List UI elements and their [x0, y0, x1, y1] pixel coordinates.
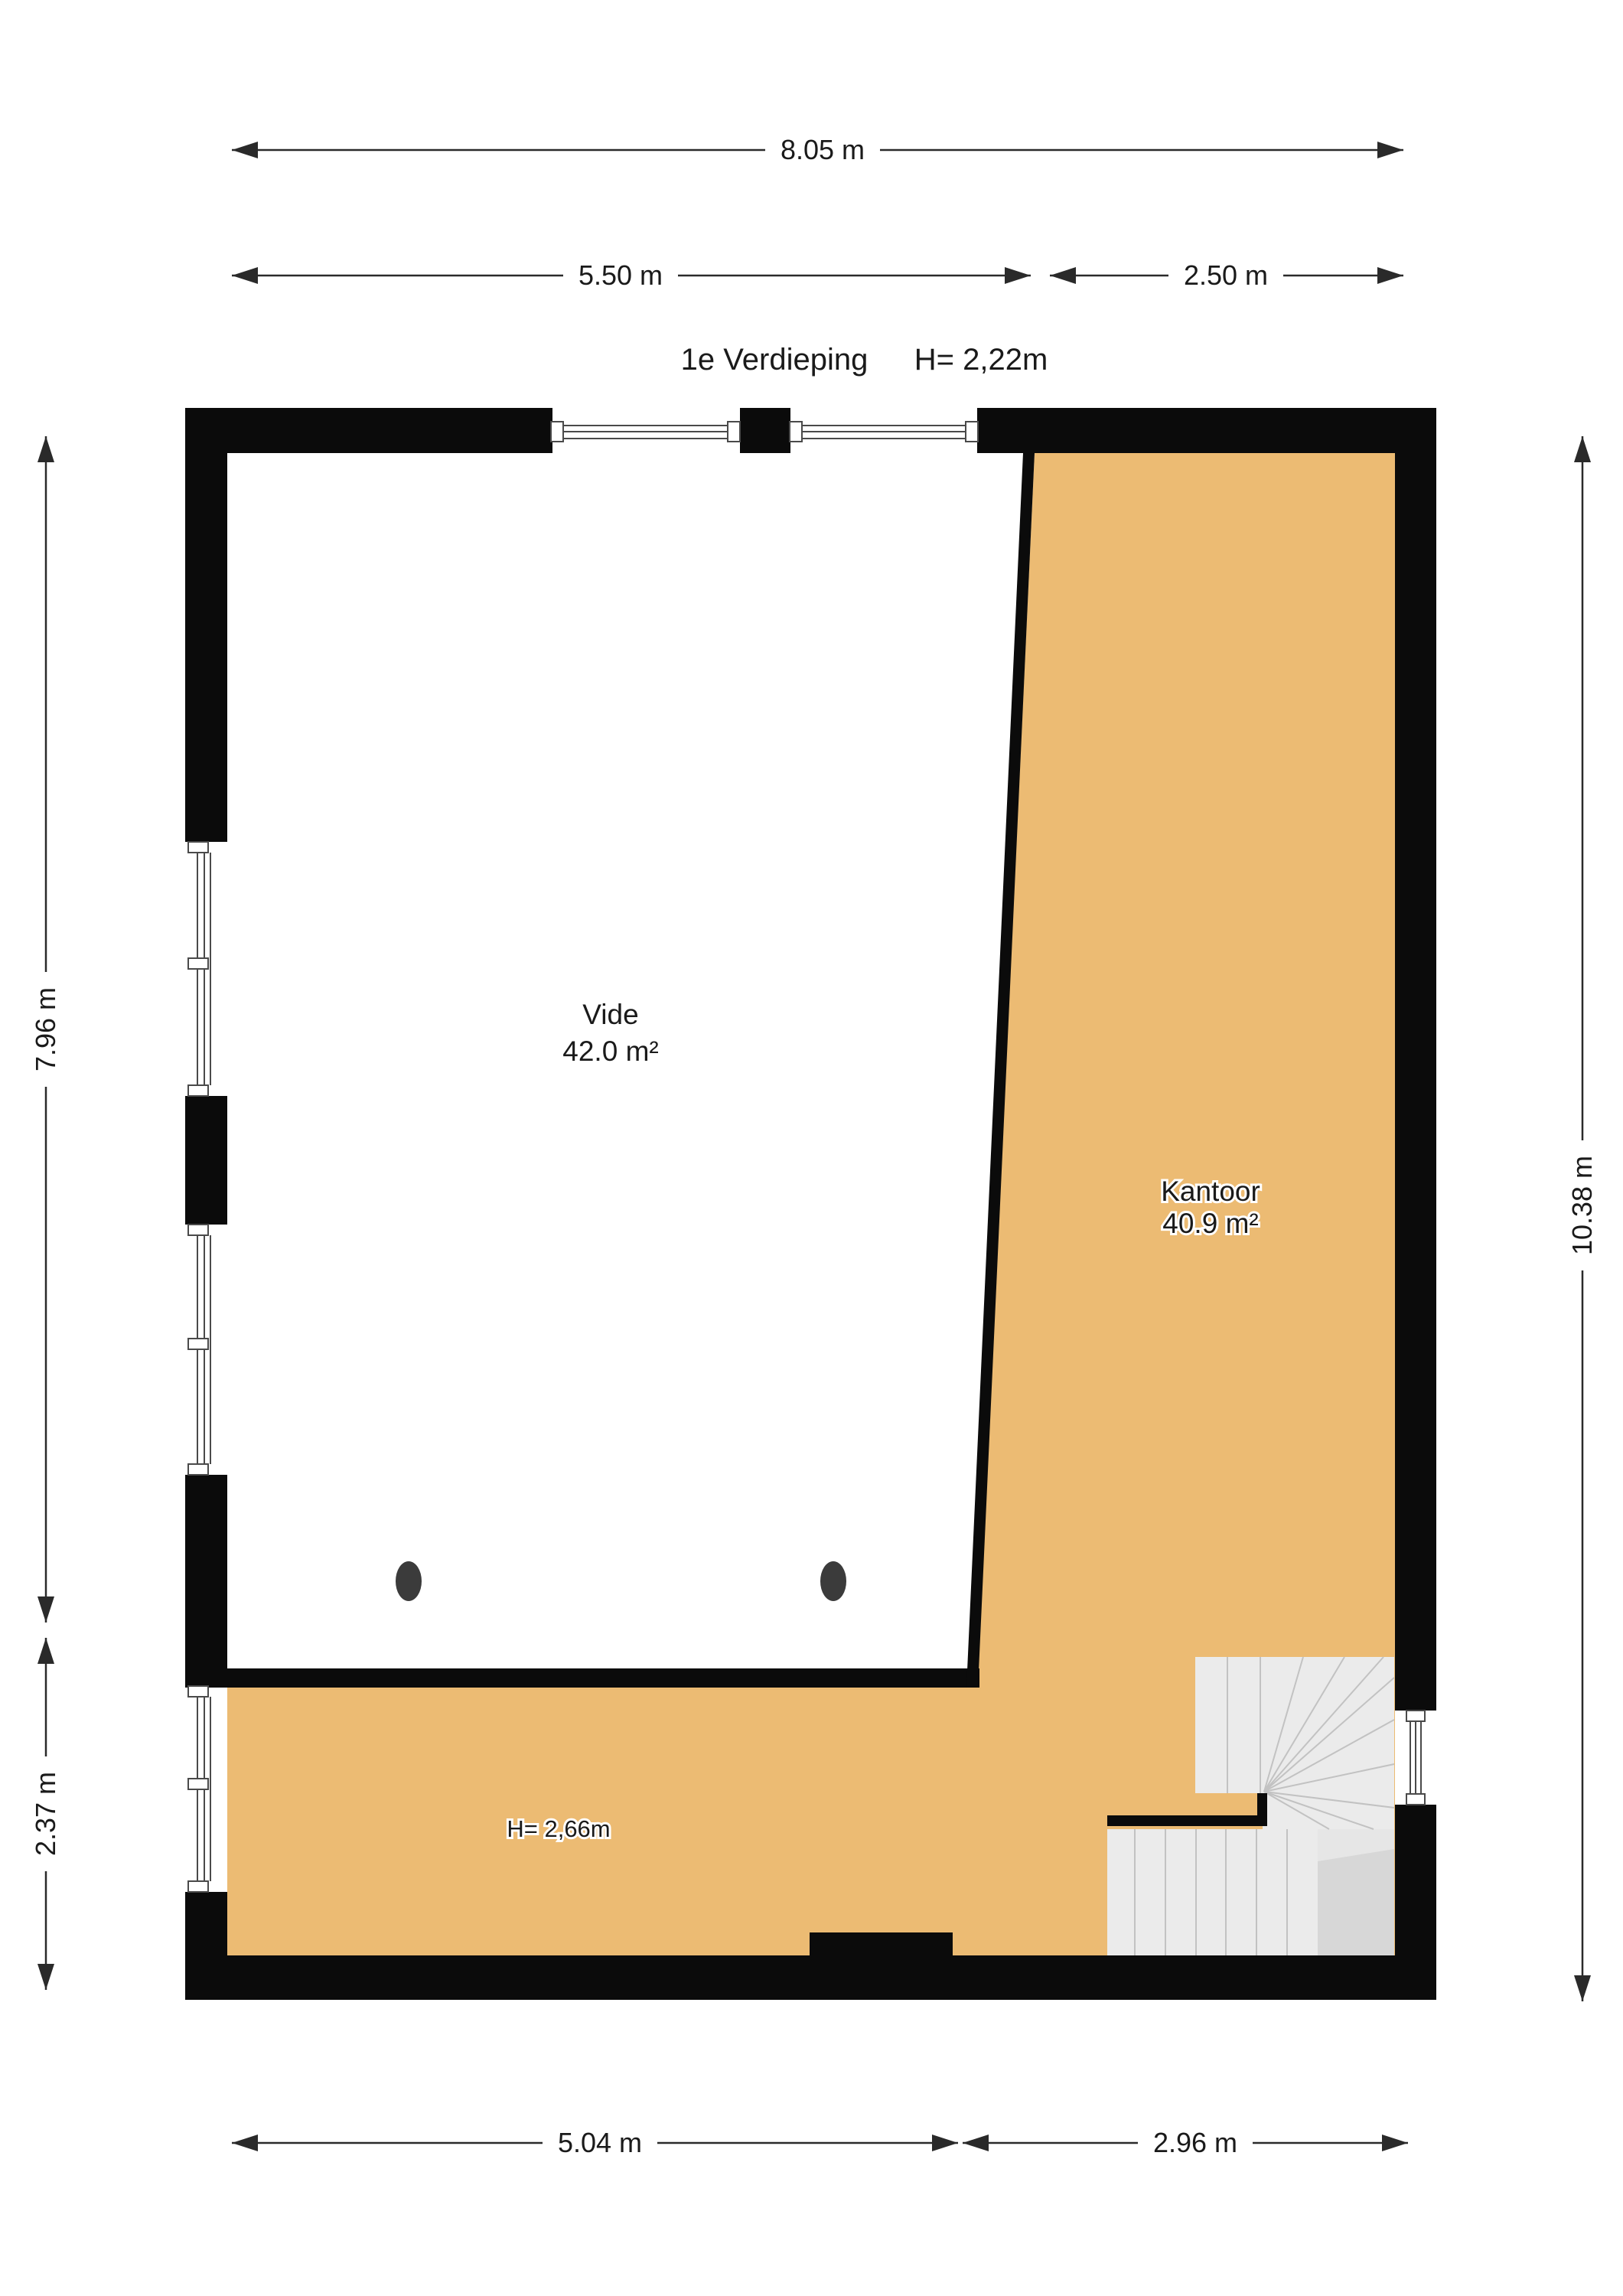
window-cap	[188, 1686, 208, 1697]
column-dot	[396, 1561, 422, 1601]
left-wall-upper	[185, 408, 227, 842]
vide-room-name: Vide	[582, 999, 638, 1030]
arrow-right-icon	[1377, 142, 1403, 158]
right-window	[1406, 1711, 1425, 1805]
kantoor-room-area: 40.9 m²	[1162, 1208, 1258, 1239]
ceiling-height-title: H= 2,22m	[914, 343, 1048, 377]
plan-title: 1e Verdieping H= 2,22m	[681, 343, 1048, 377]
right-wall-upper	[1395, 408, 1436, 1711]
arrow-down-icon	[37, 1964, 54, 1990]
left-window-3	[188, 1686, 210, 1892]
dim-bottom-left-label: 5.04 m	[558, 2127, 642, 2158]
arrow-up-icon	[37, 436, 54, 462]
arrow-right-icon	[1377, 267, 1403, 284]
dimension-top-total: 8.05 m	[232, 134, 1403, 165]
arrow-left-icon	[1050, 267, 1076, 284]
strip-height-label: H= 2,66m	[507, 1815, 610, 1842]
window-cap	[188, 1339, 208, 1349]
window-cap	[790, 422, 802, 442]
dimension-top-right: 2.50 m	[1050, 259, 1403, 291]
dim-top-right-label: 2.50 m	[1184, 259, 1268, 291]
stairs-lower-flight	[1107, 1829, 1318, 1955]
left-wall-block-2	[185, 1475, 227, 1688]
arrow-right-icon	[1005, 267, 1031, 284]
window-cap	[188, 842, 208, 853]
columns	[396, 1561, 846, 1601]
dim-right-label: 10.38 m	[1566, 1156, 1598, 1255]
top-wall-right	[977, 408, 1436, 453]
kantoor-room-name: Kantoor	[1161, 1176, 1260, 1207]
window-cap	[188, 958, 208, 969]
dimension-bottom-left: 5.04 m	[232, 2127, 958, 2158]
window-cap	[188, 1881, 208, 1892]
arrow-left-icon	[232, 267, 258, 284]
dimension-left-upper: 7.96 m	[30, 436, 61, 1623]
arrow-right-icon	[1382, 2135, 1408, 2151]
window-cap	[188, 1085, 208, 1096]
left-window-1	[188, 842, 210, 1096]
arrow-down-icon	[1574, 1975, 1591, 2001]
window-cap	[188, 1464, 208, 1475]
arrow-left-icon	[232, 142, 258, 158]
floor-title: 1e Verdieping	[681, 343, 869, 377]
stair-wall-stub	[1257, 1793, 1267, 1826]
dimension-bottom-right: 2.96 m	[963, 2127, 1408, 2158]
dim-left-upper-label: 7.96 m	[30, 987, 61, 1071]
interior-wall-vide	[227, 1668, 979, 1688]
stair-wall-horizontal	[1107, 1815, 1267, 1826]
stairs-landing-lower	[1318, 1849, 1394, 1955]
dimension-right: 10.38 m	[1566, 436, 1598, 2001]
bottom-wall-pier	[810, 1932, 953, 1957]
window-cap	[188, 1779, 208, 1789]
window-cap	[188, 1225, 208, 1235]
left-window-2	[188, 1225, 210, 1475]
dim-top-left-label: 5.50 m	[578, 259, 663, 291]
top-wall-pillar	[740, 408, 790, 453]
window-cap	[1406, 1794, 1425, 1805]
arrow-left-icon	[963, 2135, 989, 2151]
window-cap	[728, 422, 740, 442]
window-cap	[966, 422, 978, 442]
dim-bottom-right-label: 2.96 m	[1153, 2127, 1237, 2158]
vide-room-area: 42.0 m²	[562, 1035, 658, 1067]
dimension-top-left: 5.50 m	[232, 259, 1031, 291]
arrow-right-icon	[932, 2135, 958, 2151]
arrow-down-icon	[37, 1596, 54, 1623]
top-wall-left	[185, 408, 552, 453]
dimension-left-lower: 2.37 m	[30, 1638, 61, 1990]
column-dot	[820, 1561, 846, 1601]
left-wall-block-1	[185, 1096, 227, 1225]
window-cap	[1406, 1711, 1425, 1721]
arrow-up-icon	[37, 1638, 54, 1664]
arrow-up-icon	[1574, 436, 1591, 462]
arrow-left-icon	[232, 2135, 258, 2151]
bottom-wall	[185, 1955, 1436, 2000]
floor-plan: Vide 42.0 m² Kantoor 40.9 m² H= 2,66m 1e…	[0, 0, 1623, 2296]
dim-top-total-label: 8.05 m	[781, 134, 865, 165]
dim-left-lower-label: 2.37 m	[30, 1772, 61, 1856]
window-cap	[551, 422, 563, 442]
